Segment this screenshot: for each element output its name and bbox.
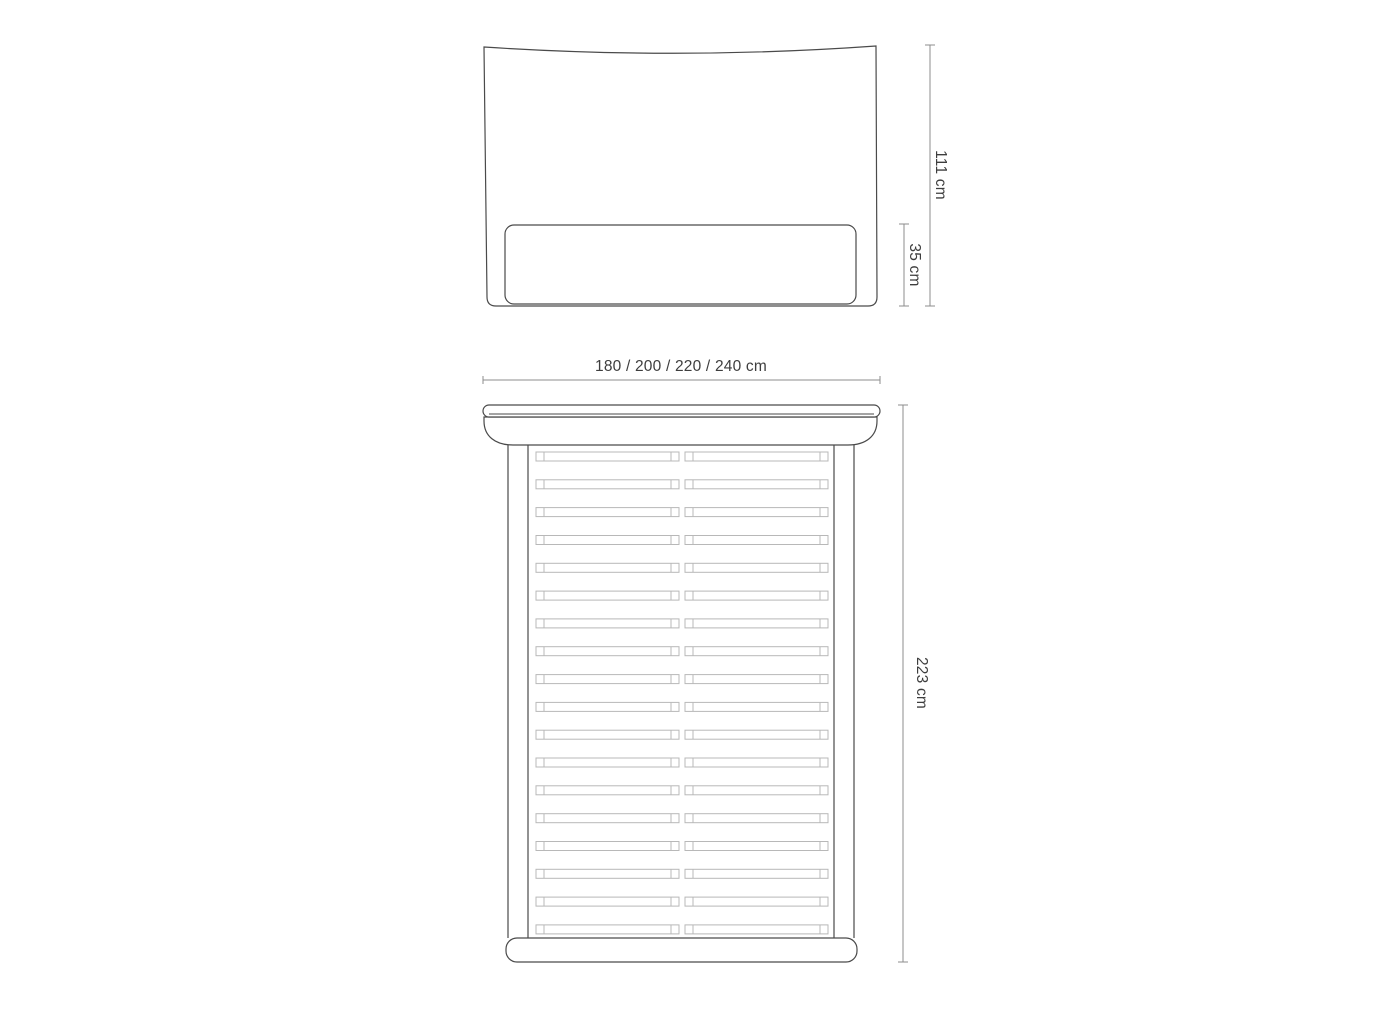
slat-row bbox=[536, 508, 828, 517]
drawing-canvas: 111 cm 35 cm 180 / 200 / 220 / 240 cm bbox=[0, 0, 1374, 1030]
slat-half bbox=[536, 563, 679, 572]
slat-half bbox=[536, 786, 679, 795]
slat-row bbox=[536, 619, 828, 628]
slat-row bbox=[536, 814, 828, 823]
slat-half bbox=[536, 758, 679, 767]
slat-row bbox=[536, 842, 828, 851]
slat-half bbox=[685, 452, 828, 461]
slat-row bbox=[536, 730, 828, 739]
slat-half bbox=[536, 675, 679, 684]
bed-width-label: 180 / 200 / 220 / 240 cm bbox=[595, 358, 767, 375]
dim-bed-length: 223 cm bbox=[898, 405, 930, 962]
slat-grid bbox=[536, 452, 828, 934]
slat-row bbox=[536, 480, 828, 489]
slat-half bbox=[685, 869, 828, 878]
slat-row bbox=[536, 536, 828, 545]
slat-half bbox=[536, 452, 679, 461]
slat-half bbox=[536, 730, 679, 739]
slat-half bbox=[685, 647, 828, 656]
slat-row bbox=[536, 897, 828, 906]
slat-half bbox=[685, 508, 828, 517]
dim-bed-width: 180 / 200 / 220 / 240 cm bbox=[483, 358, 880, 384]
slat-half bbox=[685, 536, 828, 545]
slat-half bbox=[685, 619, 828, 628]
bed-dimension-diagram: 111 cm 35 cm 180 / 200 / 220 / 240 cm bbox=[0, 0, 1374, 1030]
slat-half bbox=[536, 508, 679, 517]
slat-half bbox=[536, 897, 679, 906]
headboard-lower-panel bbox=[505, 225, 856, 304]
headboard-top-body bbox=[484, 417, 877, 445]
slat-half bbox=[536, 869, 679, 878]
panel-height-label: 35 cm bbox=[906, 243, 923, 286]
slat-row bbox=[536, 786, 828, 795]
slat-half bbox=[685, 842, 828, 851]
headboard-height-label: 111 cm bbox=[932, 150, 949, 200]
slat-half bbox=[685, 563, 828, 572]
slat-row bbox=[536, 869, 828, 878]
slat-half bbox=[685, 702, 828, 711]
slat-row bbox=[536, 925, 828, 934]
slat-row bbox=[536, 758, 828, 767]
slat-half bbox=[536, 647, 679, 656]
slat-row bbox=[536, 647, 828, 656]
slat-half bbox=[685, 730, 828, 739]
slat-row bbox=[536, 702, 828, 711]
slat-half bbox=[536, 925, 679, 934]
slat-row bbox=[536, 563, 828, 572]
bed-length-label: 223 cm bbox=[913, 657, 930, 709]
slat-row bbox=[536, 452, 828, 461]
slat-half bbox=[536, 842, 679, 851]
slat-half bbox=[685, 480, 828, 489]
slat-half bbox=[536, 619, 679, 628]
slat-half bbox=[685, 925, 828, 934]
slat-half bbox=[685, 675, 828, 684]
slat-row bbox=[536, 591, 828, 600]
headboard-front-view bbox=[484, 46, 877, 306]
slat-half bbox=[685, 758, 828, 767]
bed-top-view bbox=[483, 405, 880, 962]
slat-half bbox=[685, 591, 828, 600]
slat-half bbox=[685, 786, 828, 795]
slat-half bbox=[685, 814, 828, 823]
slat-row bbox=[536, 675, 828, 684]
dim-panel-height: 35 cm bbox=[899, 224, 923, 306]
slat-half bbox=[536, 480, 679, 489]
slat-half bbox=[536, 591, 679, 600]
slat-half bbox=[536, 536, 679, 545]
dim-headboard-height: 111 cm bbox=[925, 45, 949, 306]
footboard bbox=[506, 938, 857, 962]
slat-half bbox=[536, 814, 679, 823]
headboard-top-edge bbox=[483, 405, 880, 417]
slat-half bbox=[685, 897, 828, 906]
slat-half bbox=[536, 702, 679, 711]
